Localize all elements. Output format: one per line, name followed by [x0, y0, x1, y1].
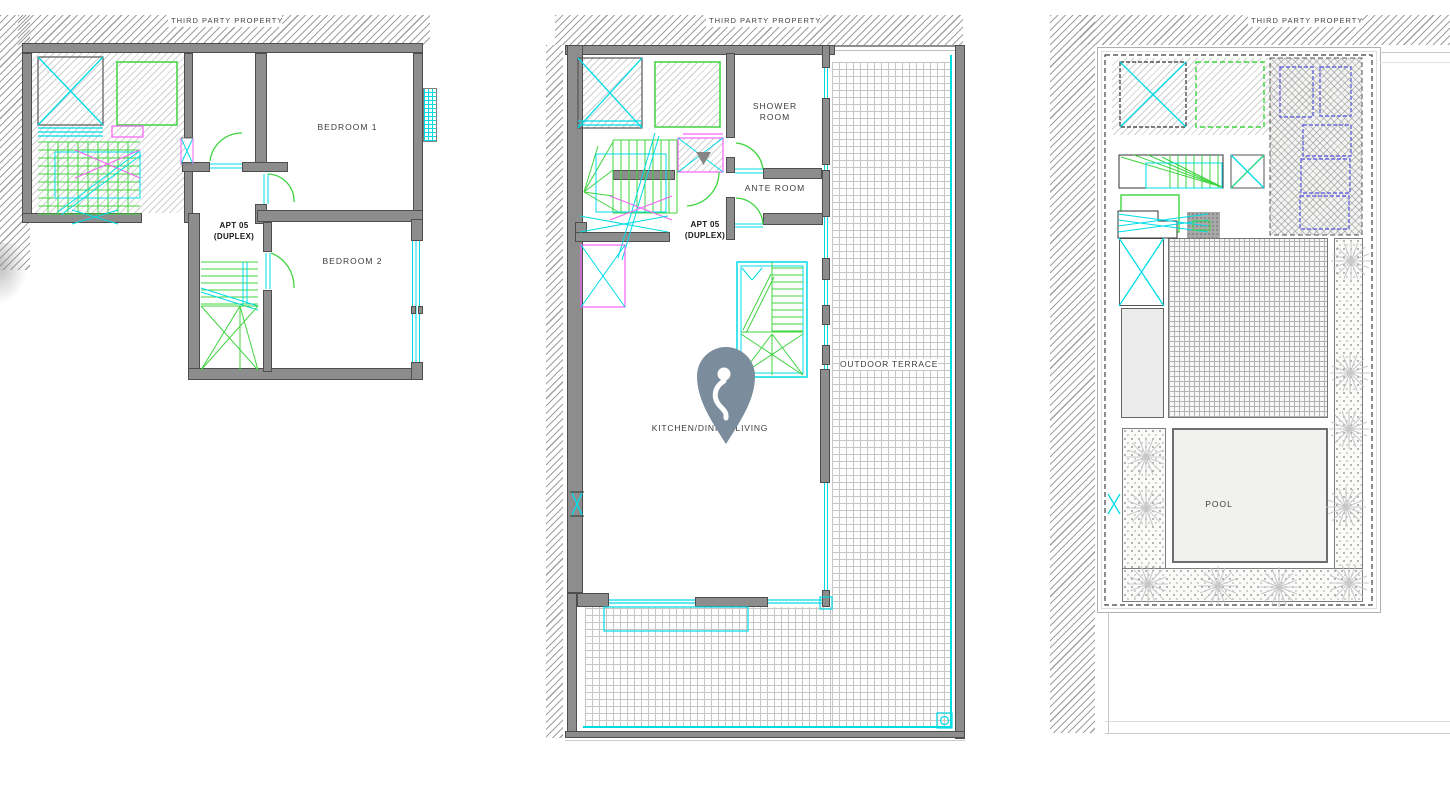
- service-pad: [1187, 212, 1220, 238]
- planter-strip-right: [1334, 238, 1363, 602]
- roof-hatch-band: [1112, 58, 1270, 135]
- floor-plan-sheet: THIRD PARTY PROPERTY BEDROOM 1 BEDROOM 2…: [0, 0, 1450, 794]
- third-party-hatch-left: [1050, 15, 1095, 733]
- panel-zone: [1270, 58, 1362, 235]
- boundary-line: [1105, 733, 1450, 734]
- planter-strip-bottom: [1122, 568, 1363, 602]
- roof-deck: [1168, 238, 1328, 418]
- boundary-label: THIRD PARTY PROPERTY: [1248, 14, 1362, 27]
- boundary-line: [1105, 721, 1450, 722]
- boundary-line: [1108, 612, 1109, 733]
- store-box: [1121, 308, 1164, 418]
- shaft-box: [1119, 238, 1164, 306]
- room-label-pool: POOL: [1181, 499, 1257, 510]
- roof-plan: THIRD PARTY PROPERTY POOL: [0, 0, 1450, 794]
- boundary-line: [1380, 52, 1450, 53]
- boundary-line: [1380, 62, 1450, 63]
- pool-basin: [1172, 428, 1328, 563]
